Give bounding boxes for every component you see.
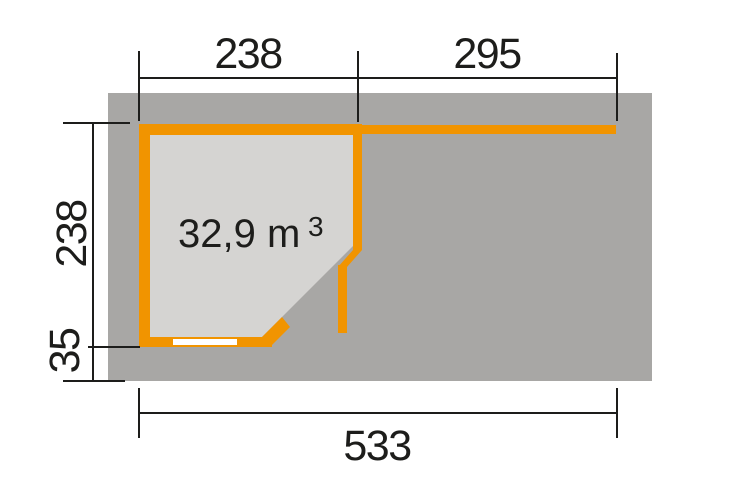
wall-top — [139, 124, 362, 135]
volume-exponent: 3 — [308, 211, 324, 242]
wall-terrace-back — [362, 125, 616, 134]
dim-label-top-width-right: 295 — [453, 30, 521, 78]
dim-label-side-depth: 238 — [48, 200, 96, 268]
dim-label-total-width: 533 — [343, 422, 411, 470]
floor-plan-diagram: 238 295 238 35 533 32,9 m 3 — [0, 0, 750, 500]
wall-door-frame — [338, 265, 347, 333]
wall-right — [353, 124, 362, 250]
dim-label-top-width-left: 238 — [214, 30, 282, 78]
dim-label-overhang: 35 — [41, 328, 89, 373]
volume-label: 32,9 m — [178, 212, 300, 256]
wall-left — [139, 124, 150, 347]
window-marker — [173, 339, 237, 345]
